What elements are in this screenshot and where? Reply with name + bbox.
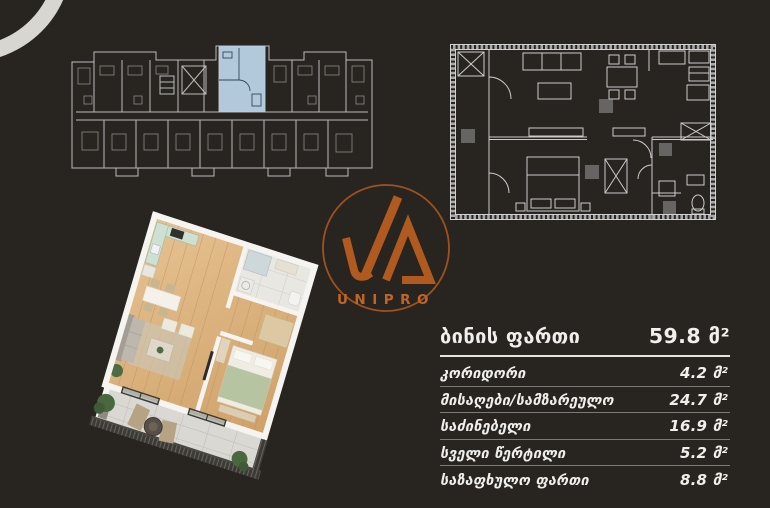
table-row: საზაფხულო ფართი 8.8 მ² xyxy=(440,466,730,492)
tv-console xyxy=(529,128,583,136)
room-label: კორიდორი xyxy=(440,366,526,382)
bathroom xyxy=(652,175,704,214)
room-value: 24.7 მ² xyxy=(669,391,730,409)
bottom-unit-partitions xyxy=(104,120,328,168)
unipro-logo: UNIPRO xyxy=(316,180,456,320)
room-value: 5.2 მ² xyxy=(680,444,730,462)
console-2 xyxy=(613,128,645,136)
apartment-render-3d xyxy=(80,192,350,497)
table-row: საძინებელი 16.9 მ² xyxy=(440,413,730,440)
apartment-area-value: 59.8 მ² xyxy=(649,324,730,348)
highlighted-unit xyxy=(219,46,265,112)
room-label: საზაფხულო ფართი xyxy=(440,473,589,489)
flyer-canvas: UNIPRO ბინის ფართი 59.8 მ² კორიდორი 4.2 … xyxy=(0,0,770,508)
kitchen-counter xyxy=(659,51,709,100)
stair-core xyxy=(160,66,206,94)
area-table-header: ბინის ფართი 59.8 მ² xyxy=(440,324,730,355)
logo-wordmark: UNIPRO xyxy=(337,292,435,308)
room-value: 4.2 მ² xyxy=(680,364,730,382)
room-label: საძინებელი xyxy=(440,419,531,435)
table-row: კორიდორი 4.2 მ² xyxy=(440,360,730,387)
logo-mark xyxy=(346,197,430,280)
apartment-area-label: ბინის ფართი xyxy=(440,324,580,348)
table-row: მისაღები/სამზარეულო 24.7 მ² xyxy=(440,387,730,414)
building-floorplan xyxy=(64,36,382,186)
header-divider xyxy=(440,355,730,357)
dining-set xyxy=(607,55,637,99)
room-value: 8.8 მ² xyxy=(680,471,730,489)
apartment-floorplan-2d xyxy=(437,33,729,231)
corridor xyxy=(76,112,368,120)
room-value: 16.9 მ² xyxy=(669,417,730,435)
bedroom-shaft xyxy=(605,159,627,193)
bed xyxy=(516,157,590,211)
area-table: ბინის ფართი 59.8 მ² კორიდორი 4.2 მ² მისა… xyxy=(440,324,730,492)
room-label: მისაღები/სამზარეულო xyxy=(440,393,614,409)
table-row: სველი წერტილი 5.2 მ² xyxy=(440,440,730,467)
coffee-table xyxy=(538,83,571,99)
room-label: სველი წერტილი xyxy=(440,446,566,462)
sofa xyxy=(523,53,581,70)
